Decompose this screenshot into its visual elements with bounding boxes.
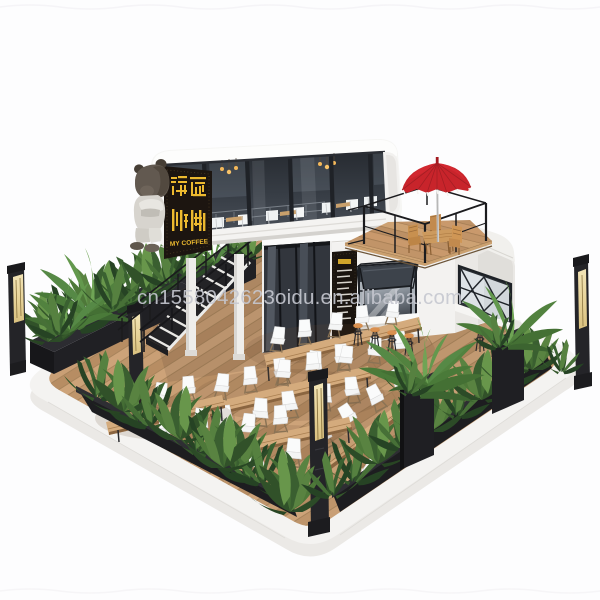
svg-text:cn1558042623oidu.en.alibaba.co: cn1558042623oidu.en.alibaba.com — [137, 286, 462, 309]
